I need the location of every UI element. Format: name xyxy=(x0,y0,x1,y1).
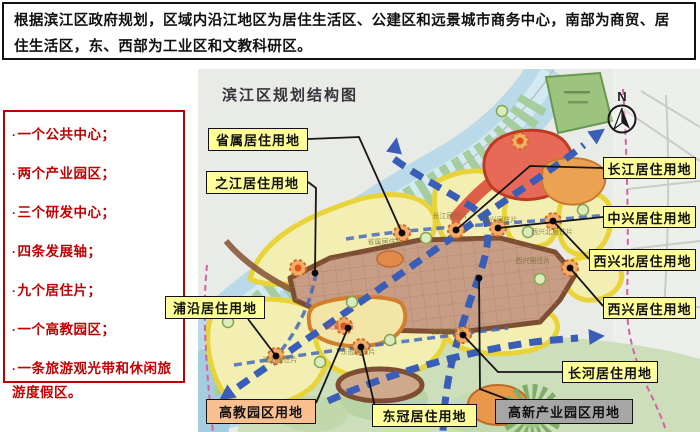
green-block-topright xyxy=(546,73,612,133)
map-label-gaojiao: 高教园区用地 xyxy=(206,399,316,424)
list-item: ·一个高教园区； xyxy=(12,318,179,342)
map-label-zhongxing: 中兴居住用地 xyxy=(603,206,696,228)
map-label-xixingbei: 西兴北居住用地 xyxy=(589,249,696,271)
bullet-icon: · xyxy=(12,323,17,337)
list-item: ·一条旅游观光带和休闲旅游度假区。 xyxy=(12,357,179,404)
svg-text:中兴居住片: 中兴居住片 xyxy=(483,215,518,224)
svg-text:长江居住片: 长江居住片 xyxy=(433,211,468,220)
map-title: 滨江区规划结构图 xyxy=(222,84,362,105)
map-label-xixing: 西兴居住用地 xyxy=(603,297,696,319)
header-text-box: 根据滨江区政府规划，区域内沿江地区为居住生活区、公建区和远景城市商务中心，南部为… xyxy=(2,2,696,60)
header-text: 根据滨江区政府规划，区域内沿江地区为居住生活区、公建区和远景城市商务中心，南部为… xyxy=(14,13,670,55)
bullet-icon: · xyxy=(12,245,17,259)
list-item: ·九个居住片； xyxy=(12,279,179,303)
bullet-icon: · xyxy=(12,284,17,298)
svg-text:浦沿居住片: 浦沿居住片 xyxy=(263,355,298,364)
slide: 根据滨江区政府规划，区域内沿江地区为居住生活区、公建区和远景城市商务中心，南部为… xyxy=(0,0,700,432)
map-label-puyan: 浦沿居住用地 xyxy=(165,296,265,319)
map-label-dongguan: 东冠居住用地 xyxy=(372,404,477,427)
svg-text:N: N xyxy=(617,89,626,104)
svg-text:省属居住片: 省属居住片 xyxy=(368,237,403,246)
list-item: ·三个研发中心； xyxy=(12,201,179,225)
svg-text:西兴居住片: 西兴居住片 xyxy=(516,256,551,265)
map-label-gaoxin: 高新产业园区用地 xyxy=(495,399,633,424)
list-item: ·四条发展轴； xyxy=(12,240,179,264)
list-item: ·一个公共中心； xyxy=(12,123,179,147)
map-label-shengshu: 省属居住用地 xyxy=(208,128,308,151)
map-label-zhijiang: 之江居住用地 xyxy=(206,171,308,194)
bullet-icon: · xyxy=(12,167,17,181)
list-item: ·两个产业园区； xyxy=(12,162,179,186)
bullet-icon: · xyxy=(12,206,17,220)
map-label-changhe: 长河居住用地 xyxy=(562,361,658,383)
map-label-changjiang: 长江居住用地 xyxy=(603,157,696,179)
bullet-icon: · xyxy=(12,362,17,376)
bullet-icon: · xyxy=(12,128,17,142)
key-points-panel: ·一个公共中心； ·两个产业园区； ·三个研发中心； ·四条发展轴； ·九个居住… xyxy=(3,110,185,383)
